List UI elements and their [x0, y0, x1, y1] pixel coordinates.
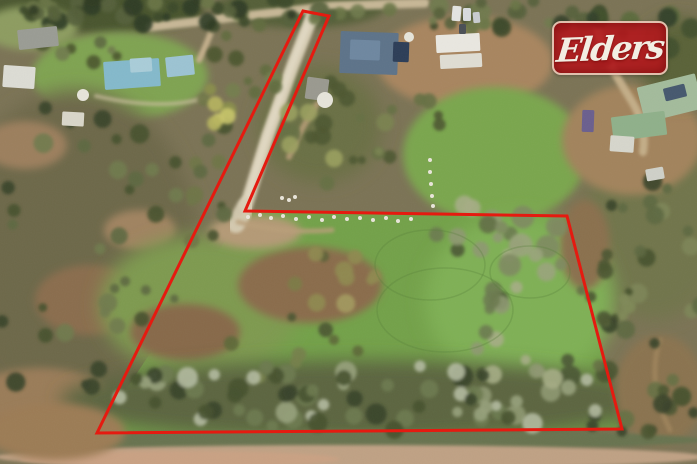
aerial-photo: Elders — [0, 0, 697, 464]
elders-logo: Elders — [552, 21, 668, 75]
elders-logo-text: Elders — [555, 27, 665, 70]
